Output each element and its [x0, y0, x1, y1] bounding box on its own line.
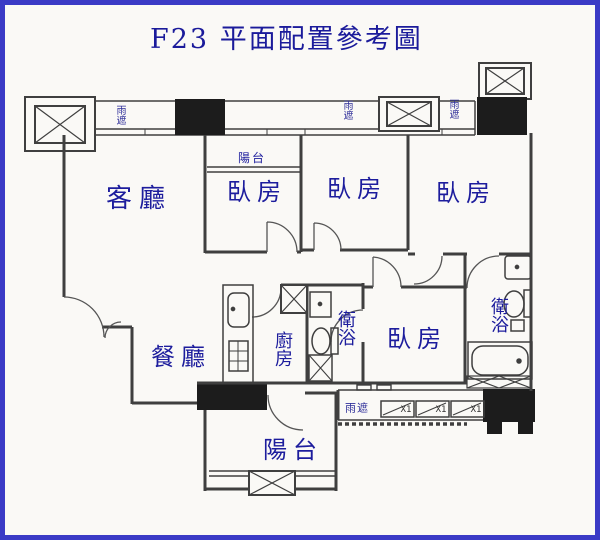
ac-unit-label: X1: [436, 405, 447, 415]
bath-middle-fixtures: [309, 292, 338, 381]
room-label-bedroom2: 臥房: [327, 177, 387, 201]
shaft-topright-icon: [479, 63, 531, 99]
canopy-label-bottom: 雨遮: [345, 403, 369, 414]
canopy-label-top-right: 雨遮: [447, 99, 457, 119]
room-label-balcony-top: 陽台: [238, 152, 266, 164]
window-hatch-right: [467, 376, 531, 388]
balcony-vent-icon: [249, 471, 295, 495]
duct-icon: [281, 285, 307, 313]
column-bottom-right: [483, 389, 535, 422]
ac-unit-label: X1: [401, 405, 412, 415]
kitchen-counter: [223, 285, 253, 383]
room-label-bedroom1: 臥房: [227, 180, 287, 204]
canopy-label-top-middle: 雨遮: [341, 100, 351, 120]
shaft-topleft-icon: [25, 97, 95, 151]
toilet-icon: [312, 328, 330, 354]
room-label-bath-right: 衛浴: [489, 297, 507, 333]
room-label-living: 客廳: [106, 186, 172, 212]
canopy-label-top-left: 雨遮: [114, 105, 124, 125]
column-bottom-center: [197, 382, 267, 410]
room-label-bedroom3: 臥房: [436, 181, 496, 205]
room-label-dining: 餐廳: [151, 345, 211, 369]
column-top-left: [175, 99, 225, 135]
column-top-right: [477, 97, 527, 135]
ac-unit-label: X1: [471, 405, 482, 415]
room-label-bath-middle: 衛浴: [336, 310, 354, 346]
room-label-bedroom4: 臥房: [387, 327, 447, 351]
shaft-topmiddle-icon: [379, 97, 439, 131]
floorplan-page: F23 平面配置參考圖: [0, 0, 600, 540]
room-label-kitchen: 廚房: [273, 331, 291, 367]
room-label-balcony-bottom: 陽台: [263, 438, 323, 462]
